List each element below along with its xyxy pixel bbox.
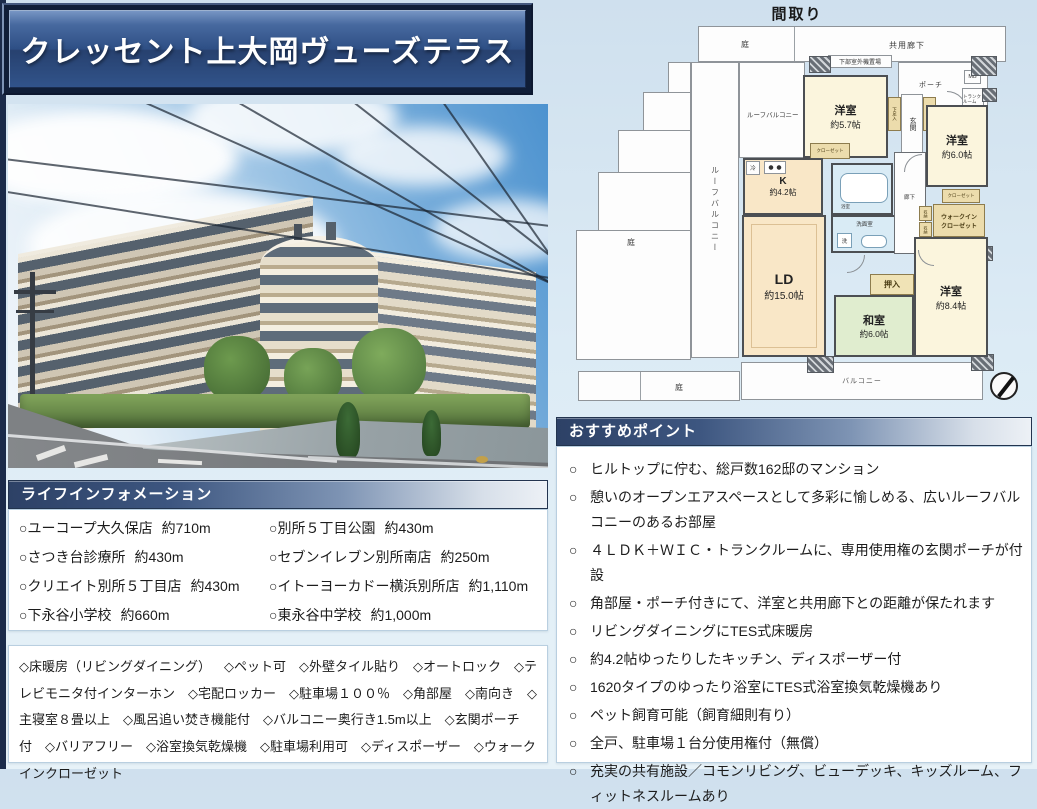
garden-area-bottom: 庭 (578, 371, 740, 401)
title-banner-inner: クレッセント上大岡ヴューズテラス (9, 10, 526, 88)
garden-step (668, 62, 691, 94)
fridge-label: 冷 (750, 164, 756, 172)
closet-label: クローゼット (948, 193, 975, 199)
tree (352, 328, 426, 402)
room-japanese: 和室 約6.0帖 (834, 295, 914, 357)
washer-label: 洗 (842, 237, 848, 245)
divider (794, 27, 795, 61)
floorplan-title: 間取り (558, 3, 1036, 24)
life-info-row: ○下永谷小学校約660m ○東永谷中学校約1,000m (19, 601, 537, 630)
column (982, 88, 997, 102)
shoe-box: 下足入 (888, 97, 901, 131)
bathtub-icon (840, 173, 888, 203)
stove-icon (764, 161, 786, 174)
recommend-point: ○ペット飼育可能（飼育細則有り） (565, 703, 1023, 728)
door-arc (847, 255, 865, 273)
life-info-item: ○セブンイレブン別所南店約250m (269, 543, 490, 572)
column (809, 56, 831, 73)
page-title: クレッセント上大岡ヴューズテラス (21, 27, 515, 71)
circle-bullet: ○ (569, 675, 577, 700)
circle-bullet: ○ (19, 514, 27, 543)
pole-crossarm (16, 310, 54, 313)
life-info-box: ○ユーコープ大久保店約710m ○別所５丁目公園約430m ○さつき台診療所約4… (8, 509, 548, 631)
recommend-point: ○４ＬＤＫ＋ＷＩＣ・トランクルームに、専用使用権の玄関ポーチが付設 (565, 538, 1023, 588)
common-corridor-label: 共用廊下 (889, 40, 925, 51)
closet-label: クローゼット (817, 148, 844, 154)
outdoor-unit-space: 下部室外機置場 (828, 55, 892, 68)
title-banner: クレッセント上大岡ヴューズテラス (2, 3, 533, 95)
compass-icon (990, 372, 1018, 400)
garden-label: 庭 (675, 382, 683, 393)
entrance: 玄関 (901, 94, 923, 154)
garden-step (618, 130, 691, 174)
circle-bullet: ○ (269, 572, 277, 601)
point-text: ４ＬＤＫ＋ＷＩＣ・トランクルームに、専用使用権の玄関ポーチが付設 (590, 542, 1023, 583)
circle-bullet: ○ (569, 457, 577, 482)
place-name: 別所５丁目公園 (277, 514, 375, 543)
circle-bullet: ○ (269, 543, 277, 572)
room-size: 約6.0帖 (860, 328, 889, 340)
life-info-header: ライフインフォメーション (8, 480, 548, 509)
circle-bullet: ○ (569, 759, 577, 784)
pole-crossarm (14, 290, 56, 294)
place-distance: 約1,110m (468, 572, 528, 601)
circle-bullet: ○ (19, 572, 27, 601)
oshiire-closet: 押入 (870, 274, 914, 295)
place-distance: 約1,000m (370, 601, 431, 630)
life-info-item: ○東永谷中学校約1,000m (269, 601, 431, 630)
place-distance: 約430m (384, 514, 433, 543)
feature-item: ◇南向き (465, 686, 514, 701)
feature-item: ◇バリアフリー (45, 739, 133, 754)
room-size: 約6.0帖 (942, 148, 973, 161)
washroom-label: 洗面室 (856, 220, 873, 228)
column (971, 56, 997, 76)
life-info-row: ○さつき台診療所約430m ○セブンイレブン別所南店約250m (19, 543, 537, 572)
roof-balcony-label: ルーフバルコニー (747, 109, 798, 119)
hedge (20, 394, 530, 428)
circle-bullet: ○ (19, 601, 27, 630)
recommend-header-label: おすすめポイント (569, 423, 697, 440)
divider (640, 372, 641, 400)
life-info-item: ○さつき台診療所約430m (19, 543, 269, 572)
hallway-label: 廊下 (904, 193, 915, 201)
bath-label: 浴室 (841, 204, 850, 210)
storage-label: 収納 (923, 226, 929, 234)
storage: 収納 (919, 206, 932, 221)
walk-in-closet: ウォークイン クローゼット (933, 204, 985, 237)
porch-label: ポーチ (919, 80, 943, 90)
recommend-point: ○リビングダイニングにTES式床暖房 (565, 619, 1023, 644)
life-info-item: ○クリエイト別所５丁目店約430m (19, 572, 269, 601)
place-distance: 約250m (440, 543, 489, 572)
manhole (476, 456, 488, 463)
room-size: 約8.4帖 (936, 299, 967, 312)
place-distance: 約660m (120, 601, 169, 630)
room-name: K (779, 176, 786, 187)
life-info-header-label: ライフインフォメーション (21, 486, 212, 503)
recommend-point: ○1620タイプのゆったり浴室にTES式浴室換気乾燥機あり (565, 675, 1023, 700)
floorplan: 間取り 庭 共用廊下 下部室外機置場 庭 ルーフバルコニー ルーフバルコニー 庭… (558, 0, 1036, 413)
storage-label: 収納 (923, 210, 929, 218)
point-text: ペット飼育可能（飼育細則有り） (590, 707, 800, 723)
garden-step (643, 92, 691, 132)
conifer-bush (422, 410, 441, 456)
place-name: セブンイレブン別所南店 (277, 543, 431, 572)
recommend-box: ○ヒルトップに佇む、総戸数162邸のマンション ○憩いのオープンエアスペースとし… (556, 446, 1032, 763)
fridge: 冷 (746, 161, 760, 175)
entrance-label: 玄関 (907, 117, 917, 131)
garden-area-left: 庭 (576, 230, 691, 360)
place-name: ユーコープ大久保店 (27, 514, 152, 543)
life-info-item: ○イトーヨーカドー横浜別所店約1,110m (269, 572, 528, 601)
circle-bullet: ○ (569, 619, 577, 644)
life-info-item: ○ユーコープ大久保店約710m (19, 514, 269, 543)
wic-label: クローゼット (941, 221, 977, 230)
place-name: イトーヨーカドー横浜別所店 (277, 572, 459, 601)
sink-icon (861, 235, 887, 248)
place-name: さつき台診療所 (27, 543, 125, 572)
recommend-point: ○約4.2帖ゆったりしたキッチン、ディスポーザー付 (565, 647, 1023, 672)
room-size: 約4.2帖 (769, 187, 796, 198)
feature-item: ◇浴室換気乾燥機 (146, 739, 247, 754)
circle-bullet: ○ (269, 601, 277, 630)
circle-bullet: ○ (569, 485, 577, 510)
circle-bullet: ○ (569, 538, 577, 563)
feature-item: ◇ディスポーザー (361, 739, 461, 754)
feature-item: ◇宅配ロッカー (188, 686, 276, 701)
balcony-label: バルコニー (842, 376, 882, 386)
feature-item: ◇ペット可 (224, 659, 286, 674)
feature-item: ◇風呂追い焚き機能付 (123, 712, 250, 727)
bathroom: 浴室 (831, 163, 893, 215)
life-info-item: ○下永谷小学校約660m (19, 601, 269, 630)
room-name: 洋室 (946, 132, 968, 148)
point-text: リビングダイニングにTES式床暖房 (590, 623, 813, 639)
tree (204, 336, 270, 402)
feature-item: ◇床暖房（リビングダイニング） (19, 659, 211, 674)
page-left-border (0, 0, 6, 769)
feature-item: ◇外壁タイル貼り (299, 659, 400, 674)
life-info-row: ○クリエイト別所５丁目店約430m ○イトーヨーカドー横浜別所店約1,110m (19, 572, 537, 601)
point-text: ヒルトップに佇む、総戸数162邸のマンション (590, 461, 879, 477)
shoe-box-label: 下足入 (892, 107, 898, 121)
feature-item: ◇駐車場利用可 (260, 739, 348, 754)
place-name: 東永谷中学校 (277, 601, 361, 630)
wic-label: ウォークイン (941, 212, 977, 221)
room-size: 約5.7帖 (830, 118, 861, 131)
oshiire-label: 押入 (884, 279, 900, 290)
room-name: 和室 (863, 312, 885, 328)
recommend-point: ○ヒルトップに佇む、総戸数162邸のマンション (565, 457, 1023, 482)
features-box: ◇床暖房（リビングダイニング）◇ペット可◇外壁タイル貼り◇オートロック◇テレビモ… (8, 645, 548, 763)
point-text: 全戸、駐車場１台分使用権付（無償） (590, 735, 828, 751)
point-text: 1620タイプのゆったり浴室にTES式浴室換気乾燥機あり (590, 679, 942, 695)
circle-bullet: ○ (569, 647, 577, 672)
washroom: 洗面室 洗 (831, 215, 898, 253)
compass-needle (997, 376, 1015, 397)
place-name: 下永谷小学校 (27, 601, 111, 630)
roof-balcony-side: ルーフバルコニー (691, 62, 739, 358)
point-text: 約4.2帖ゆったりしたキッチン、ディスポーザー付 (590, 651, 901, 667)
column (807, 356, 834, 373)
circle-bullet: ○ (569, 591, 577, 616)
point-text: 角部屋・ポーチ付きにて、洋室と共用廊下との距離が保たれます (590, 595, 995, 611)
feature-item: ◇駐車場１００％ (289, 686, 390, 701)
feature-item: ◇オートロック (413, 659, 501, 674)
balcony-area: バルコニー (741, 362, 983, 400)
recommend-point: ○充実の共有施設／コモンリビング、ビューデッキ、キッズルーム、フィットネスルーム… (565, 759, 1023, 809)
building-photo (8, 104, 548, 468)
point-text: 憩いのオープンエアスペースとして多彩に愉しめる、広いルーフバルコニーのあるお部屋 (590, 489, 1020, 530)
place-distance: 約710m (162, 514, 211, 543)
place-distance: 約430m (190, 572, 239, 601)
room-name: 洋室 (940, 283, 962, 299)
circle-bullet: ○ (569, 731, 577, 756)
circle-bullet: ○ (569, 703, 577, 728)
washer-box: 洗 (837, 233, 852, 248)
ld-floor-outline (751, 224, 817, 348)
recommend-point: ○角部屋・ポーチ付きにて、洋室と共用廊下との距離が保たれます (565, 591, 1023, 616)
trunk-room-label: トランクルーム (963, 94, 983, 105)
garden-step (598, 172, 691, 232)
recommend-header: おすすめポイント (556, 417, 1032, 446)
recommend-point: ○憩いのオープンエアスペースとして多彩に愉しめる、広いルーフバルコニーのあるお部… (565, 485, 1023, 535)
conifer-bush (336, 402, 360, 458)
life-info-row: ○ユーコープ大久保店約710m ○別所５丁目公園約430m (19, 514, 537, 543)
closet: クローゼット (810, 143, 850, 159)
life-info-item: ○別所５丁目公園約430m (269, 514, 434, 543)
room-name: 洋室 (835, 102, 857, 118)
feature-item: ◇バルコニー奥行き1.5m以上 (263, 712, 432, 727)
roof-balcony-top: ルーフバルコニー (739, 62, 805, 158)
circle-bullet: ○ (269, 514, 277, 543)
room-living-dining: LD 約15.0帖 (742, 215, 826, 357)
place-distance: 約430m (134, 543, 183, 572)
roof-balcony-label: ルーフバルコニー (710, 166, 721, 254)
closet: クローゼット (942, 189, 980, 203)
feature-item: ◇角部屋 (403, 686, 452, 701)
garden-label: 庭 (741, 39, 749, 50)
room-western-6-0: 洋室 約6.0帖 (926, 105, 988, 187)
outdoor-unit-label: 下部室外機置場 (839, 57, 881, 66)
place-name: クリエイト別所５丁目店 (27, 572, 181, 601)
rooftop-equipment (326, 222, 336, 240)
recommend-point: ○全戸、駐車場１台分使用権付（無償） (565, 731, 1023, 756)
garden-label: 庭 (627, 237, 635, 248)
point-text: 充実の共有施設／コモンリビング、ビューデッキ、キッズルーム、フィットネスルームあ… (590, 763, 1022, 804)
storage: 収納 (919, 222, 932, 237)
circle-bullet: ○ (19, 543, 27, 572)
